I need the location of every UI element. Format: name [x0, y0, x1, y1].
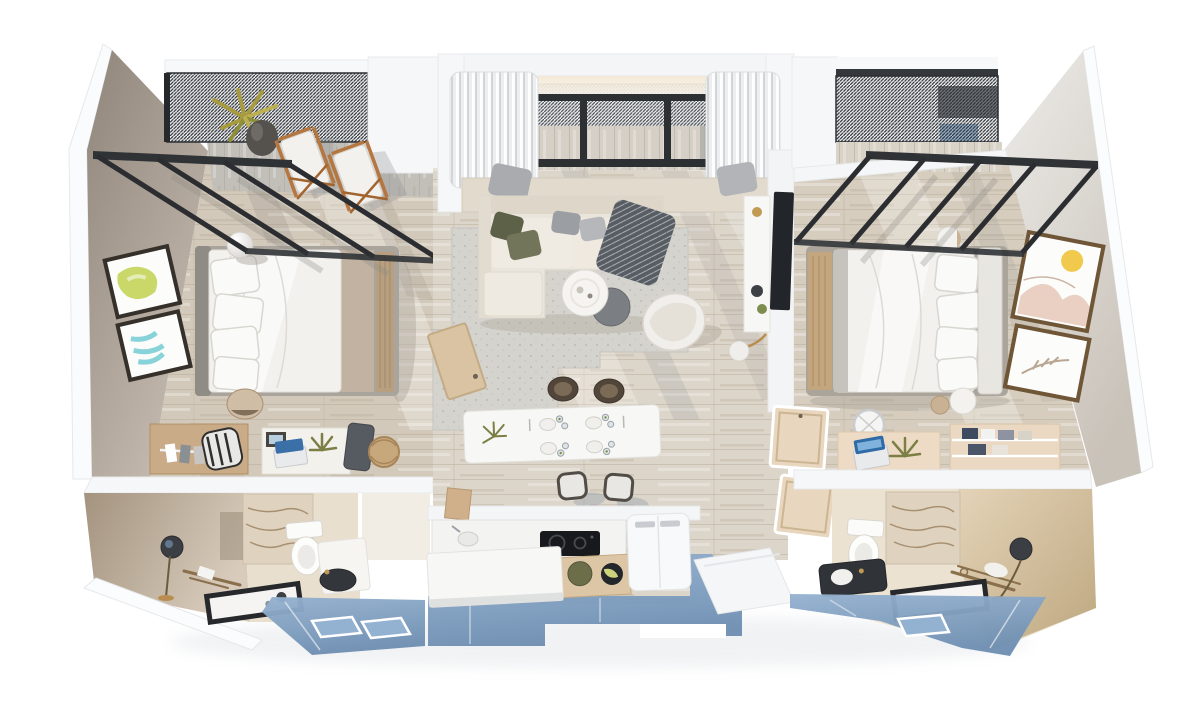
- right-bed-pillows: [934, 254, 984, 392]
- faucet-gold: [325, 570, 330, 575]
- dining-chair-top-1: [548, 377, 578, 401]
- left-bed-runner: [338, 250, 374, 392]
- center-zone: [427, 54, 794, 646]
- floorplan-canvas: 3D cutaway floor plan render of a two-be…: [0, 0, 1200, 702]
- vanity-right: [819, 559, 888, 598]
- terrace-parapet-right: [836, 57, 998, 69]
- vanity-left: [317, 538, 370, 595]
- left-wing-wall-band: [84, 477, 433, 493]
- art-frame-teal: [118, 311, 191, 380]
- dining-table: [463, 405, 661, 464]
- left-shower-zone: [362, 493, 430, 560]
- right-bed-headboard: [978, 248, 1002, 394]
- pergola-mesh-right: [836, 76, 998, 142]
- pergola-fascia-right: [836, 69, 998, 76]
- pergola-fascia-left: [164, 73, 170, 142]
- right-curtain-box-volume: [792, 57, 838, 169]
- tv-panel: [770, 192, 794, 311]
- left-dressing-zone: [150, 423, 399, 474]
- left-side-stool: [227, 389, 263, 419]
- kitchen-door: [444, 488, 471, 520]
- kitchen-tan-cabinet: [557, 554, 631, 598]
- striped-desk-chair: [201, 427, 244, 472]
- terrace-parapet-left: [165, 60, 368, 73]
- console-gold-cup: [752, 207, 762, 217]
- left-laptop: [272, 438, 307, 468]
- towel-shelf: [950, 424, 1060, 470]
- kitchen-island: [427, 546, 564, 607]
- right-wing-wall-band: [794, 470, 1092, 489]
- right-wing: [770, 46, 1153, 656]
- left-wing: [69, 44, 470, 655]
- refrigerator: [627, 513, 692, 591]
- woven-basket: [369, 437, 399, 467]
- dining-chair-top-2: [594, 379, 624, 403]
- travertine-wall-right: [886, 492, 960, 564]
- console-dark-bowl: [751, 285, 763, 297]
- sofa-chaise: [484, 272, 542, 316]
- right-bed-foot-bench: [808, 252, 832, 390]
- floorplan-render: 3D cutaway floor plan render of a two-be…: [0, 0, 1200, 702]
- coffee-table-white: [562, 270, 608, 316]
- left-bed-pillows: [210, 255, 264, 392]
- console-green-cup: [757, 304, 767, 314]
- right-bed: [806, 246, 1010, 411]
